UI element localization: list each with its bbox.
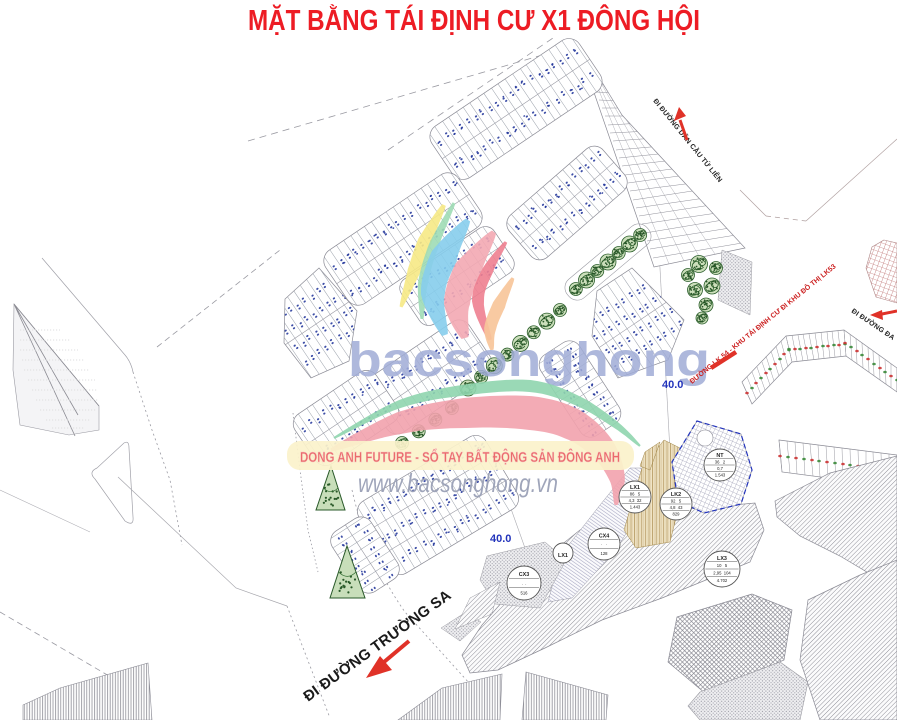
svg-text:MẶT BẰNG TÁI ĐỊNH CƯ X1 ĐÔNG H: MẶT BẰNG TÁI ĐỊNH CƯ X1 ĐÔNG HỘI: [248, 4, 700, 37]
svg-text:· ·: · ·: [521, 581, 526, 586]
svg-text:1.443: 1.443: [630, 505, 641, 510]
svg-text:LK2: LK2: [671, 492, 681, 498]
svg-text:40.0: 40.0: [662, 379, 683, 391]
svg-text:4,8 43: 4,8 43: [670, 505, 683, 510]
svg-text:4,3 32: 4,3 32: [629, 498, 642, 503]
svg-text:86 5: 86 5: [630, 491, 641, 496]
svg-text:CX3: CX3: [519, 572, 530, 578]
svg-text:10 5: 10 5: [717, 563, 728, 568]
svg-text:2,95 104: 2,95 104: [713, 571, 731, 576]
svg-text:www.bacsonghong.vn: www.bacsonghong.vn: [358, 468, 558, 498]
svg-text:92 5: 92 5: [671, 498, 682, 503]
svg-text:bacsonghong: bacsonghong: [348, 334, 710, 387]
svg-text:0,7: 0,7: [717, 466, 723, 471]
svg-text:40.0: 40.0: [490, 533, 511, 545]
svg-text:NT: NT: [716, 453, 724, 459]
svg-text:· ·: · ·: [601, 542, 607, 547]
svg-text:DONG ANH FUTURE - SỔ TAY BẤT Đ: DONG ANH FUTURE - SỔ TAY BẤT ĐỘNG SẢN ĐÔ…: [300, 448, 620, 466]
svg-text:829: 829: [673, 512, 681, 517]
svg-text:516: 516: [521, 591, 529, 596]
svg-text:LX3: LX3: [717, 556, 727, 562]
svg-text:LX1: LX1: [558, 553, 568, 559]
svg-text:CX4: CX4: [599, 533, 610, 539]
svg-text:4.702: 4.702: [717, 578, 728, 583]
svg-text:36 2: 36 2: [715, 459, 726, 464]
svg-text:LX1: LX1: [630, 485, 640, 491]
svg-text:128: 128: [601, 551, 609, 556]
svg-text:1.543: 1.543: [715, 473, 726, 478]
